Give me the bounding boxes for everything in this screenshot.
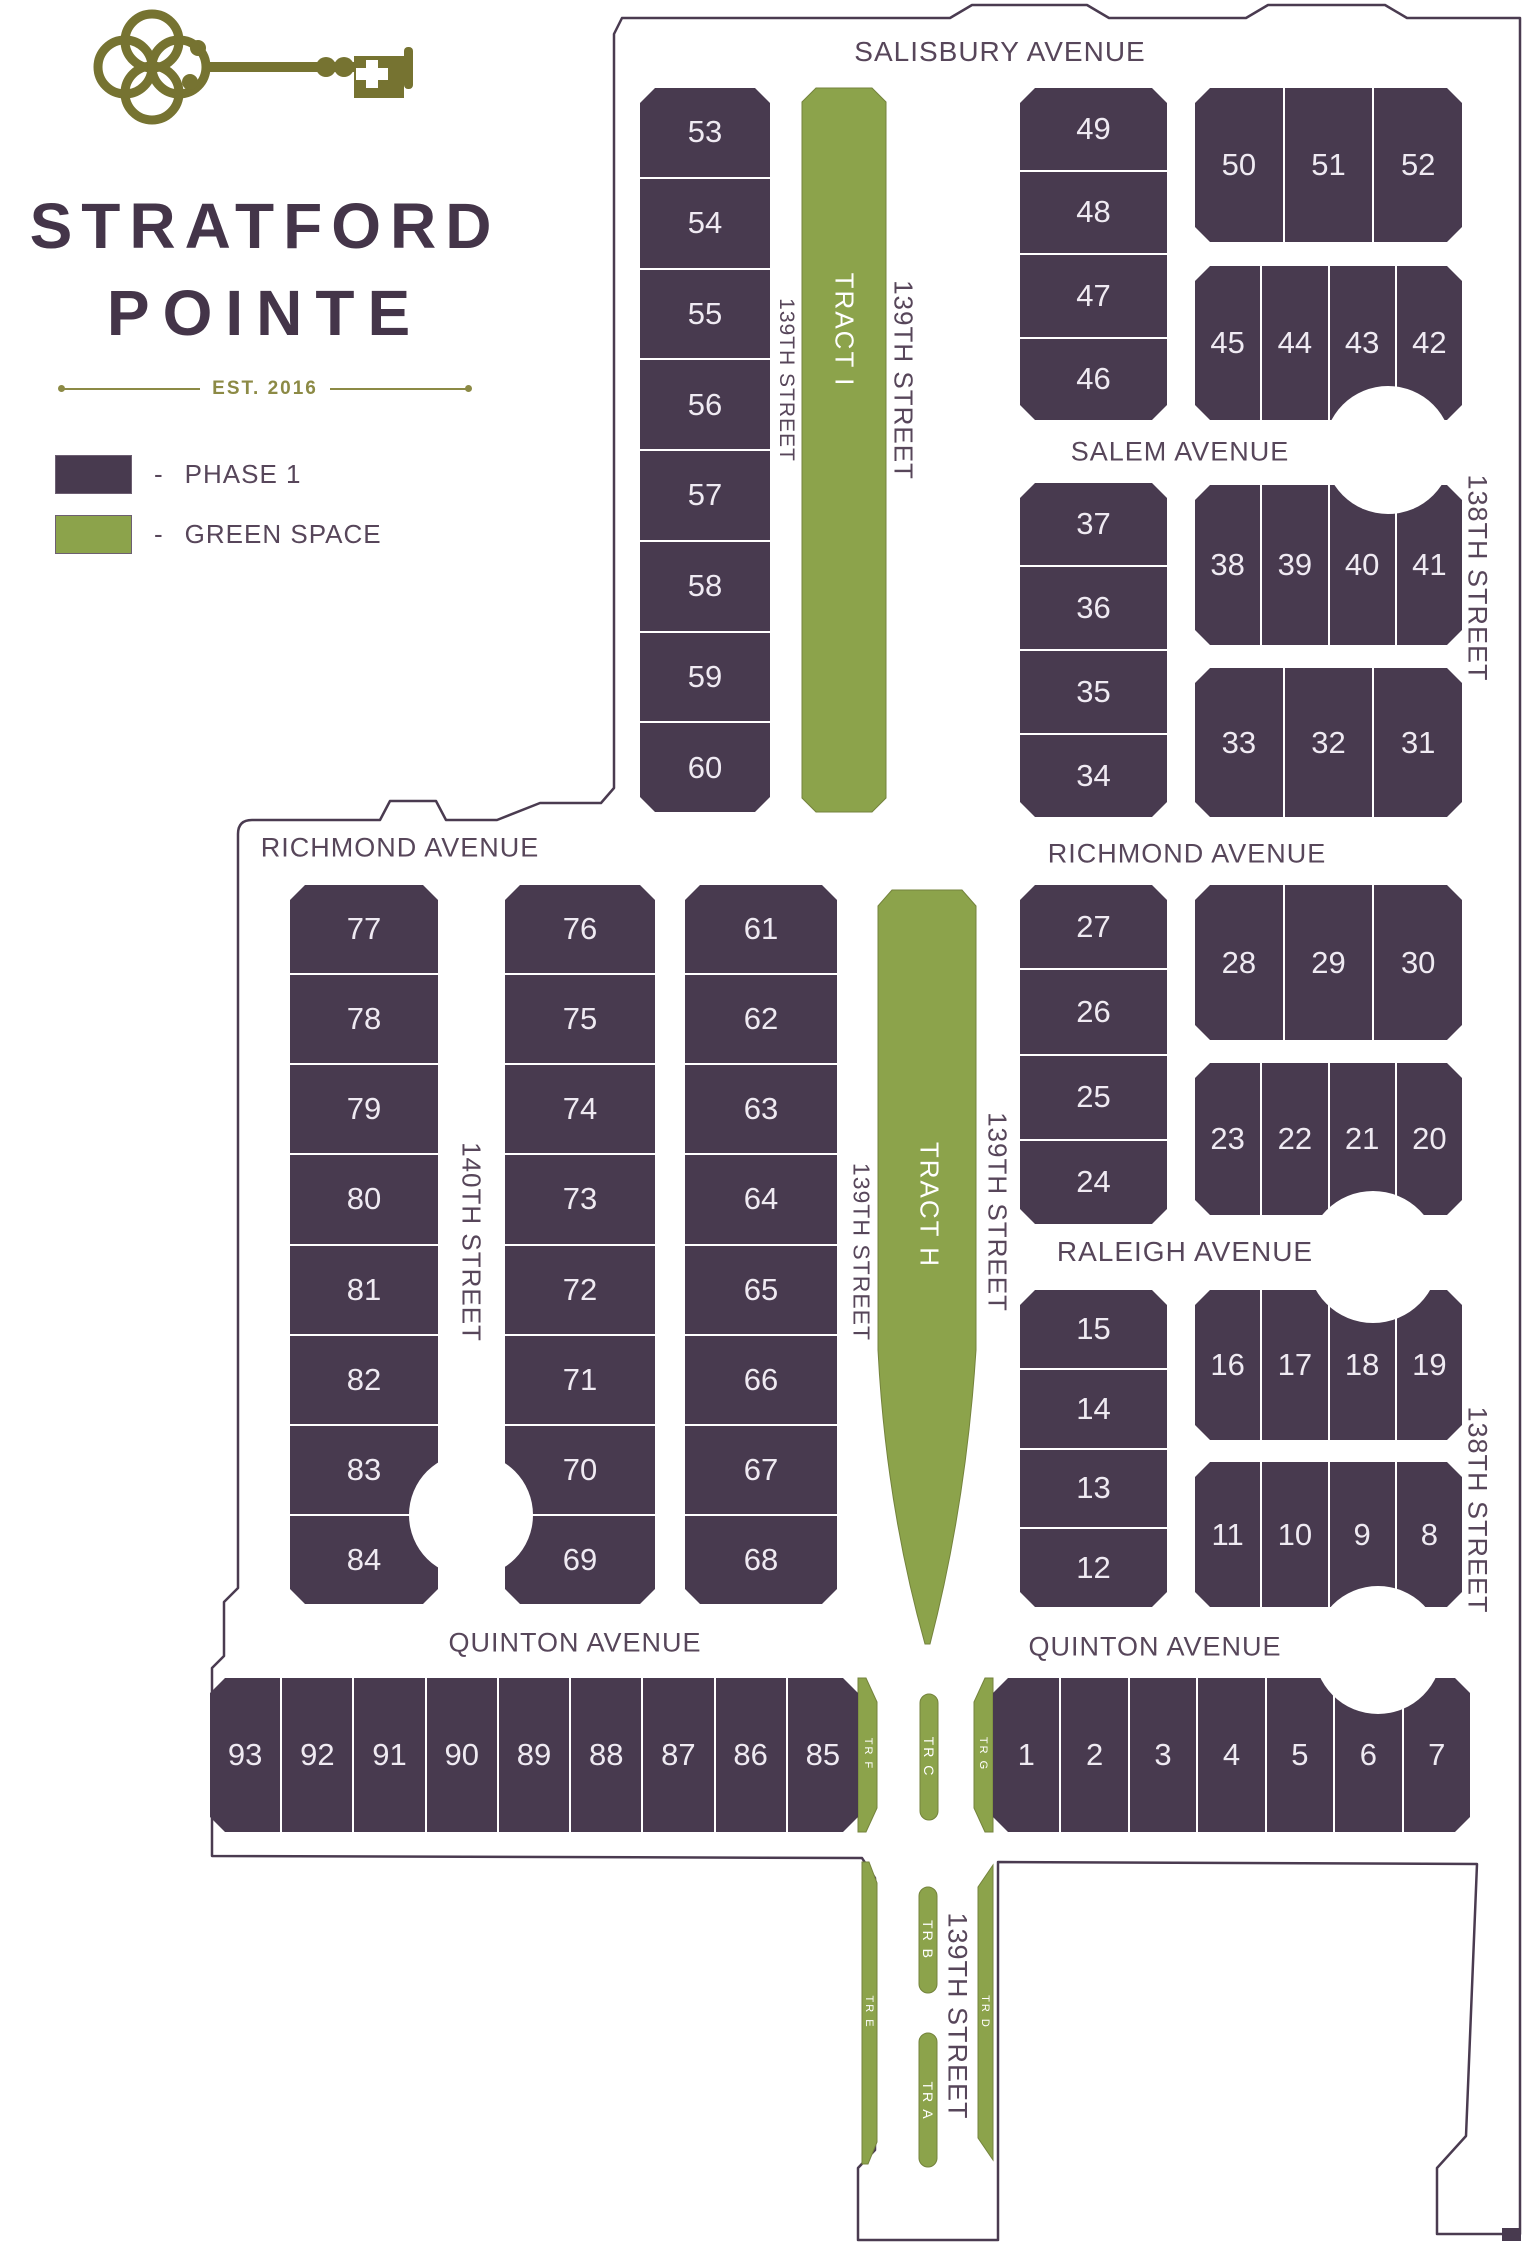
- lot-56: 56: [640, 360, 770, 449]
- lot-77: 77: [290, 885, 438, 973]
- lot-number: 43: [1345, 325, 1379, 361]
- legend: -PHASE 1-GREEN SPACE: [55, 455, 382, 575]
- street-label-salem-avenue: SALEM AVENUE: [1071, 437, 1290, 468]
- lot-60: 60: [640, 723, 770, 812]
- lot-number: 71: [563, 1362, 597, 1398]
- lot-number: 65: [744, 1272, 778, 1308]
- lot-32: 32: [1285, 668, 1373, 817]
- street-label-raleigh-avenue: RALEIGH AVENUE: [1057, 1236, 1313, 1268]
- lot-number: 72: [563, 1272, 597, 1308]
- lot-1: 1: [993, 1678, 1059, 1832]
- lot-45: 45: [1195, 266, 1260, 420]
- lot-number: 27: [1076, 909, 1110, 945]
- lot-3: 3: [1130, 1678, 1196, 1832]
- lot-number: 64: [744, 1181, 778, 1217]
- street-label-139th-street-mid-left: 139TH STREET: [848, 1163, 875, 1341]
- tract-label-tr-d: TR D: [979, 1995, 991, 2029]
- lot-30: 30: [1374, 885, 1462, 1040]
- street-label-139th-street-upper-left: 139TH STREET: [774, 298, 798, 462]
- lot-number: 39: [1278, 547, 1312, 583]
- street-label-salisbury-avenue: SALISBURY AVENUE: [854, 36, 1145, 68]
- block-1-7: 1234567: [993, 1678, 1470, 1832]
- lot-36: 36: [1020, 567, 1167, 649]
- lot-6: 6: [1335, 1678, 1401, 1832]
- tract-label-tr-c: TR C: [921, 1737, 937, 1778]
- lot-number: 11: [1212, 1517, 1244, 1553]
- lot-number: 10: [1278, 1517, 1312, 1553]
- lot-number: 63: [744, 1091, 778, 1127]
- lot-33: 33: [1195, 668, 1283, 817]
- lot-65: 65: [685, 1246, 837, 1334]
- established-row: EST. 2016: [60, 378, 470, 400]
- lot-57: 57: [640, 451, 770, 540]
- lot-46: 46: [1020, 339, 1167, 421]
- block-50-52: 505152: [1195, 88, 1462, 242]
- tract-label-tract-h: TRACT H: [914, 1142, 945, 1268]
- lot-number: 20: [1412, 1121, 1446, 1157]
- street-label-138th-street-upper: 138TH STREET: [1462, 474, 1493, 681]
- lot-37: 37: [1020, 483, 1167, 565]
- lot-88: 88: [571, 1678, 641, 1832]
- lot-number: 37: [1076, 506, 1110, 542]
- lot-5: 5: [1267, 1678, 1333, 1832]
- lot-48: 48: [1020, 172, 1167, 254]
- tract-label-tr-a: TR A: [920, 2081, 936, 2120]
- lot-47: 47: [1020, 255, 1167, 337]
- block-61-68: 6162636465666768: [685, 885, 837, 1604]
- lot-91: 91: [354, 1678, 424, 1832]
- lot-29: 29: [1285, 885, 1373, 1040]
- lot-number: 70: [563, 1452, 597, 1488]
- lot-number: 14: [1076, 1391, 1110, 1427]
- lot-number: 30: [1401, 945, 1435, 981]
- lot-number: 31: [1401, 725, 1435, 761]
- lot-40: 40: [1330, 485, 1395, 645]
- block-45-42: 45444342: [1195, 266, 1462, 420]
- street-label-140th-street: 140TH STREET: [456, 1142, 487, 1342]
- lot-12: 12: [1020, 1529, 1167, 1607]
- lot-number: 9: [1354, 1517, 1371, 1553]
- lot-number: 85: [806, 1737, 840, 1773]
- lot-number: 56: [688, 387, 722, 423]
- lot-2: 2: [1061, 1678, 1127, 1832]
- lot-76: 76: [505, 885, 655, 973]
- lot-83: 83: [290, 1426, 438, 1514]
- lot-84: 84: [290, 1516, 438, 1604]
- lot-number: 78: [347, 1001, 381, 1037]
- lot-71: 71: [505, 1336, 655, 1424]
- lot-69: 69: [505, 1516, 655, 1604]
- street-label-richmond-avenue-east: RICHMOND AVENUE: [1048, 839, 1327, 870]
- block-28-30: 282930: [1195, 885, 1462, 1040]
- lot-number: 75: [563, 1001, 597, 1037]
- lot-number: 19: [1412, 1347, 1446, 1383]
- lot-number: 40: [1345, 547, 1379, 583]
- lot-39: 39: [1262, 485, 1327, 645]
- lot-number: 62: [744, 1001, 778, 1037]
- lot-82: 82: [290, 1336, 438, 1424]
- lot-number: 80: [347, 1181, 381, 1217]
- lot-64: 64: [685, 1155, 837, 1243]
- logo-title-line2: POINTE: [0, 281, 530, 345]
- lot-number: 82: [347, 1362, 381, 1398]
- lot-93: 93: [210, 1678, 280, 1832]
- lot-27: 27: [1020, 885, 1167, 968]
- lot-number: 88: [589, 1737, 623, 1773]
- lot-23: 23: [1195, 1063, 1260, 1215]
- lot-63: 63: [685, 1065, 837, 1153]
- lot-number: 34: [1076, 758, 1110, 794]
- lot-number: 93: [228, 1737, 262, 1773]
- lot-number: 66: [744, 1362, 778, 1398]
- lot-72: 72: [505, 1246, 655, 1334]
- lot-13: 13: [1020, 1450, 1167, 1528]
- lot-number: 25: [1076, 1079, 1110, 1115]
- lot-number: 18: [1345, 1347, 1379, 1383]
- lot-74: 74: [505, 1065, 655, 1153]
- lot-89: 89: [499, 1678, 569, 1832]
- legend-item-phase-1: -PHASE 1: [55, 455, 382, 493]
- lot-number: 52: [1401, 147, 1435, 183]
- lot-number: 57: [688, 477, 722, 513]
- lot-78: 78: [290, 975, 438, 1063]
- lot-15: 15: [1020, 1290, 1167, 1368]
- lot-number: 69: [563, 1542, 597, 1578]
- tract-i-shape: [802, 88, 886, 812]
- lot-number: 6: [1360, 1737, 1377, 1773]
- block-23-20: 23222120: [1195, 1063, 1462, 1215]
- lot-87: 87: [643, 1678, 713, 1832]
- lot-number: 55: [688, 296, 722, 332]
- lot-55: 55: [640, 270, 770, 359]
- legend-dash: -: [154, 519, 163, 550]
- block-93-85: 939291908988878685: [210, 1678, 858, 1832]
- est-rule-left: [60, 388, 200, 390]
- logo-title-line1: STRATFORD: [0, 194, 530, 258]
- lot-number: 4: [1223, 1737, 1240, 1773]
- antique-key-icon: [0, 0, 430, 140]
- lot-number: 45: [1210, 325, 1244, 361]
- lot-number: 26: [1076, 994, 1110, 1030]
- lot-66: 66: [685, 1336, 837, 1424]
- lot-90: 90: [427, 1678, 497, 1832]
- lot-70: 70: [505, 1426, 655, 1514]
- block-33-31: 333231: [1195, 668, 1462, 817]
- legend-label: GREEN SPACE: [185, 519, 382, 550]
- tract-label-tr-g: TR G: [977, 1737, 989, 1771]
- street-label-139th-street-mid-right: 139TH STREET: [982, 1112, 1013, 1312]
- lot-number: 91: [372, 1737, 406, 1773]
- lot-31: 31: [1374, 668, 1462, 817]
- lot-34: 34: [1020, 735, 1167, 817]
- lot-number: 59: [688, 659, 722, 695]
- lot-number: 5: [1291, 1737, 1308, 1773]
- tract-label-tract-i: TRACT I: [829, 273, 860, 388]
- legend-swatch: [55, 455, 132, 494]
- lot-35: 35: [1020, 651, 1167, 733]
- lot-59: 59: [640, 633, 770, 722]
- lot-number: 29: [1311, 945, 1345, 981]
- lot-number: 36: [1076, 590, 1110, 626]
- lot-number: 84: [347, 1542, 381, 1578]
- block-76-69: 7675747372717069: [505, 885, 655, 1604]
- lot-81: 81: [290, 1246, 438, 1334]
- lot-44: 44: [1262, 266, 1327, 420]
- lot-number: 49: [1076, 111, 1110, 147]
- lot-number: 87: [661, 1737, 695, 1773]
- lot-number: 2: [1086, 1737, 1103, 1773]
- lot-21: 21: [1330, 1063, 1395, 1215]
- lot-number: 15: [1076, 1311, 1110, 1347]
- lot-number: 44: [1278, 325, 1312, 361]
- street-label-richmond-avenue-west: RICHMOND AVENUE: [261, 833, 540, 864]
- block-16-19: 16171819: [1195, 1290, 1462, 1440]
- lot-42: 42: [1397, 266, 1462, 420]
- lot-85: 85: [788, 1678, 858, 1832]
- block-11-8: 111098: [1195, 1462, 1462, 1607]
- lot-4: 4: [1198, 1678, 1264, 1832]
- block-77-84: 7778798081828384: [290, 885, 438, 1604]
- tract-label-tr-b: TR B: [920, 1920, 936, 1960]
- lot-number: 81: [347, 1272, 381, 1308]
- lot-number: 73: [563, 1181, 597, 1217]
- plat-map-page: STRATFORD POINTE EST. 2016 -PHASE 1-GREE…: [0, 0, 1526, 2242]
- lot-number: 60: [688, 750, 722, 786]
- lot-49: 49: [1020, 88, 1167, 170]
- lot-number: 58: [688, 568, 722, 604]
- lot-number: 23: [1210, 1121, 1244, 1157]
- lot-86: 86: [716, 1678, 786, 1832]
- lot-51: 51: [1285, 88, 1373, 242]
- lot-80: 80: [290, 1155, 438, 1243]
- lot-11: 11: [1195, 1462, 1260, 1607]
- street-label-quinton-avenue-east: QUINTON AVENUE: [1028, 1632, 1281, 1663]
- street-label-139th-street-south: 139TH STREET: [942, 1912, 973, 2119]
- lot-number: 68: [744, 1542, 778, 1578]
- lot-26: 26: [1020, 970, 1167, 1053]
- legend-label: PHASE 1: [185, 459, 302, 490]
- block-27-24: 27262524: [1020, 885, 1167, 1224]
- lot-number: 42: [1412, 325, 1446, 361]
- tract-label-tr-e: TR E: [863, 1995, 875, 2028]
- lot-number: 17: [1278, 1347, 1312, 1383]
- lot-number: 16: [1210, 1347, 1244, 1383]
- lot-50: 50: [1195, 88, 1283, 242]
- est-rule-right: [330, 388, 470, 390]
- lot-number: 47: [1076, 278, 1110, 314]
- lot-number: 48: [1076, 194, 1110, 230]
- lot-number: 46: [1076, 361, 1110, 397]
- lot-43: 43: [1330, 266, 1395, 420]
- street-label-138th-street-lower: 138TH STREET: [1462, 1406, 1493, 1613]
- lot-53: 53: [640, 88, 770, 177]
- lot-75: 75: [505, 975, 655, 1063]
- lot-number: 12: [1076, 1550, 1110, 1586]
- lot-61: 61: [685, 885, 837, 973]
- lot-number: 21: [1345, 1121, 1379, 1157]
- lot-number: 86: [733, 1737, 767, 1773]
- lot-number: 32: [1311, 725, 1345, 761]
- lot-number: 22: [1278, 1121, 1312, 1157]
- lot-number: 76: [563, 911, 597, 947]
- block-49-46: 49484746: [1020, 88, 1167, 420]
- lot-79: 79: [290, 1065, 438, 1153]
- block-37-34: 37363534: [1020, 483, 1167, 817]
- lot-number: 83: [347, 1452, 381, 1488]
- lot-10: 10: [1262, 1462, 1327, 1607]
- lot-number: 54: [688, 205, 722, 241]
- lot-54: 54: [640, 179, 770, 268]
- lot-58: 58: [640, 542, 770, 631]
- legend-dash: -: [154, 459, 163, 490]
- established-text: EST. 2016: [212, 378, 318, 400]
- lot-7: 7: [1404, 1678, 1470, 1832]
- lot-24: 24: [1020, 1141, 1167, 1224]
- lot-68: 68: [685, 1516, 837, 1604]
- lot-16: 16: [1195, 1290, 1260, 1440]
- lot-62: 62: [685, 975, 837, 1063]
- lot-number: 89: [517, 1737, 551, 1773]
- lot-number: 51: [1311, 147, 1345, 183]
- lot-number: 50: [1222, 147, 1256, 183]
- lot-14: 14: [1020, 1370, 1167, 1448]
- lot-number: 90: [445, 1737, 479, 1773]
- lot-number: 7: [1428, 1737, 1445, 1773]
- lot-22: 22: [1262, 1063, 1327, 1215]
- lot-73: 73: [505, 1155, 655, 1243]
- lot-number: 67: [744, 1452, 778, 1488]
- lot-41: 41: [1397, 485, 1462, 645]
- lot-line-84-69: [470, 1565, 472, 1605]
- lot-28: 28: [1195, 885, 1283, 1040]
- lot-number: 33: [1222, 725, 1256, 761]
- tract-label-tr-f: TR F: [862, 1738, 874, 1770]
- lot-number: 53: [688, 114, 722, 150]
- block-15-12: 15141312: [1020, 1290, 1167, 1607]
- lot-67: 67: [685, 1426, 837, 1514]
- lot-number: 13: [1076, 1470, 1110, 1506]
- lot-number: 28: [1222, 945, 1256, 981]
- legend-swatch: [55, 515, 132, 554]
- lot-number: 61: [744, 911, 778, 947]
- lot-number: 35: [1076, 674, 1110, 710]
- lot-38: 38: [1195, 485, 1260, 645]
- lot-number: 74: [563, 1091, 597, 1127]
- lot-number: 1: [1018, 1737, 1035, 1773]
- lot-19: 19: [1397, 1290, 1462, 1440]
- lot-18: 18: [1330, 1290, 1395, 1440]
- lot-8: 8: [1397, 1462, 1462, 1607]
- lot-number: 79: [347, 1091, 381, 1127]
- lot-17: 17: [1262, 1290, 1327, 1440]
- street-label-139th-street-upper-right: 139TH STREET: [888, 280, 919, 480]
- lot-number: 38: [1210, 547, 1244, 583]
- lot-20: 20: [1397, 1063, 1462, 1215]
- boundary-corner-marker: [1502, 2228, 1521, 2241]
- lot-number: 41: [1412, 547, 1446, 583]
- lot-25: 25: [1020, 1056, 1167, 1139]
- block-53-60: 5354555657585960: [640, 88, 770, 812]
- lot-number: 24: [1076, 1164, 1110, 1200]
- street-label-quinton-avenue-west: QUINTON AVENUE: [448, 1628, 701, 1659]
- legend-item-green-space: -GREEN SPACE: [55, 515, 382, 553]
- lot-52: 52: [1374, 88, 1462, 242]
- lot-number: 8: [1421, 1517, 1438, 1553]
- lot-number: 77: [347, 911, 381, 947]
- lot-92: 92: [282, 1678, 352, 1832]
- block-38-41: 38394041: [1195, 485, 1462, 645]
- lot-number: 92: [300, 1737, 334, 1773]
- lot-9: 9: [1330, 1462, 1395, 1607]
- lot-number: 3: [1154, 1737, 1171, 1773]
